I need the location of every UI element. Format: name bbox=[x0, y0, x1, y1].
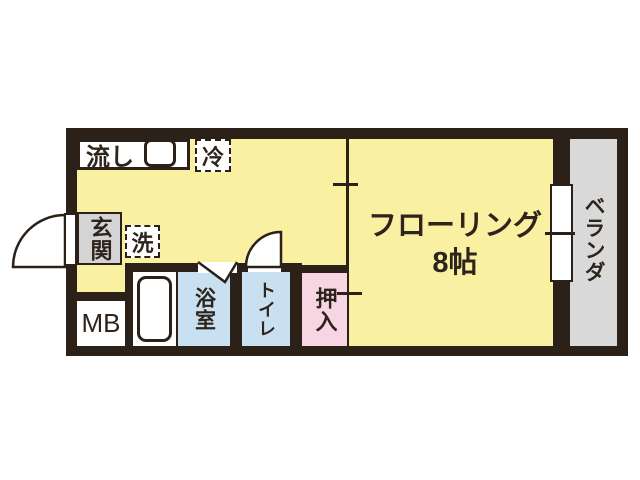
wall-toilet-closet bbox=[290, 263, 302, 346]
veranda-area: ベランダ bbox=[570, 139, 617, 346]
toilet-label: トイレ bbox=[257, 281, 275, 338]
veranda-label: ベランダ bbox=[583, 195, 604, 283]
wall-closet-top bbox=[302, 265, 347, 273]
toilet-door-swing-icon bbox=[245, 231, 283, 269]
partition-tick-upper bbox=[333, 183, 358, 186]
wall-mb-top bbox=[66, 292, 133, 301]
sink-basin bbox=[144, 139, 176, 167]
washing-machine-label: 洗 bbox=[131, 226, 153, 258]
entrance-door-swing-icon bbox=[12, 214, 66, 268]
entrance-label: 玄関 bbox=[89, 216, 111, 262]
refrigerator-label: 冷 bbox=[202, 140, 224, 172]
bathroom-label: 浴室 bbox=[194, 287, 215, 331]
meter-box-label: MB bbox=[82, 308, 121, 339]
floor-plan-canvas: ベランダ MB 浴室 トイレ 押入 玄関 流し bbox=[0, 0, 640, 480]
sink-label: 流し bbox=[80, 137, 134, 172]
washing-machine-box: 洗 bbox=[125, 225, 160, 258]
bathtub bbox=[137, 276, 172, 342]
bathroom-folding-door-icon bbox=[196, 260, 241, 286]
entrance-room: 玄関 bbox=[77, 212, 122, 265]
closet-room: 押入 bbox=[302, 273, 347, 346]
toilet-room: トイレ bbox=[242, 272, 290, 346]
main-room-label: フローリング 8帖 bbox=[355, 208, 555, 282]
partition-tick-lower bbox=[337, 292, 362, 295]
refrigerator-box: 冷 bbox=[195, 139, 231, 172]
meter-box-room: MB bbox=[77, 301, 125, 346]
main-room-label-line2: 8帖 bbox=[355, 245, 555, 282]
closet-label: 押入 bbox=[314, 287, 336, 333]
wall-tub-left bbox=[125, 263, 133, 346]
floor-plan: ベランダ MB 浴室 トイレ 押入 玄関 流し bbox=[66, 128, 628, 356]
main-room-label-line1: フローリング bbox=[355, 208, 555, 245]
entrance-door-panel bbox=[64, 213, 77, 266]
wall-bath-top-left bbox=[125, 263, 199, 272]
